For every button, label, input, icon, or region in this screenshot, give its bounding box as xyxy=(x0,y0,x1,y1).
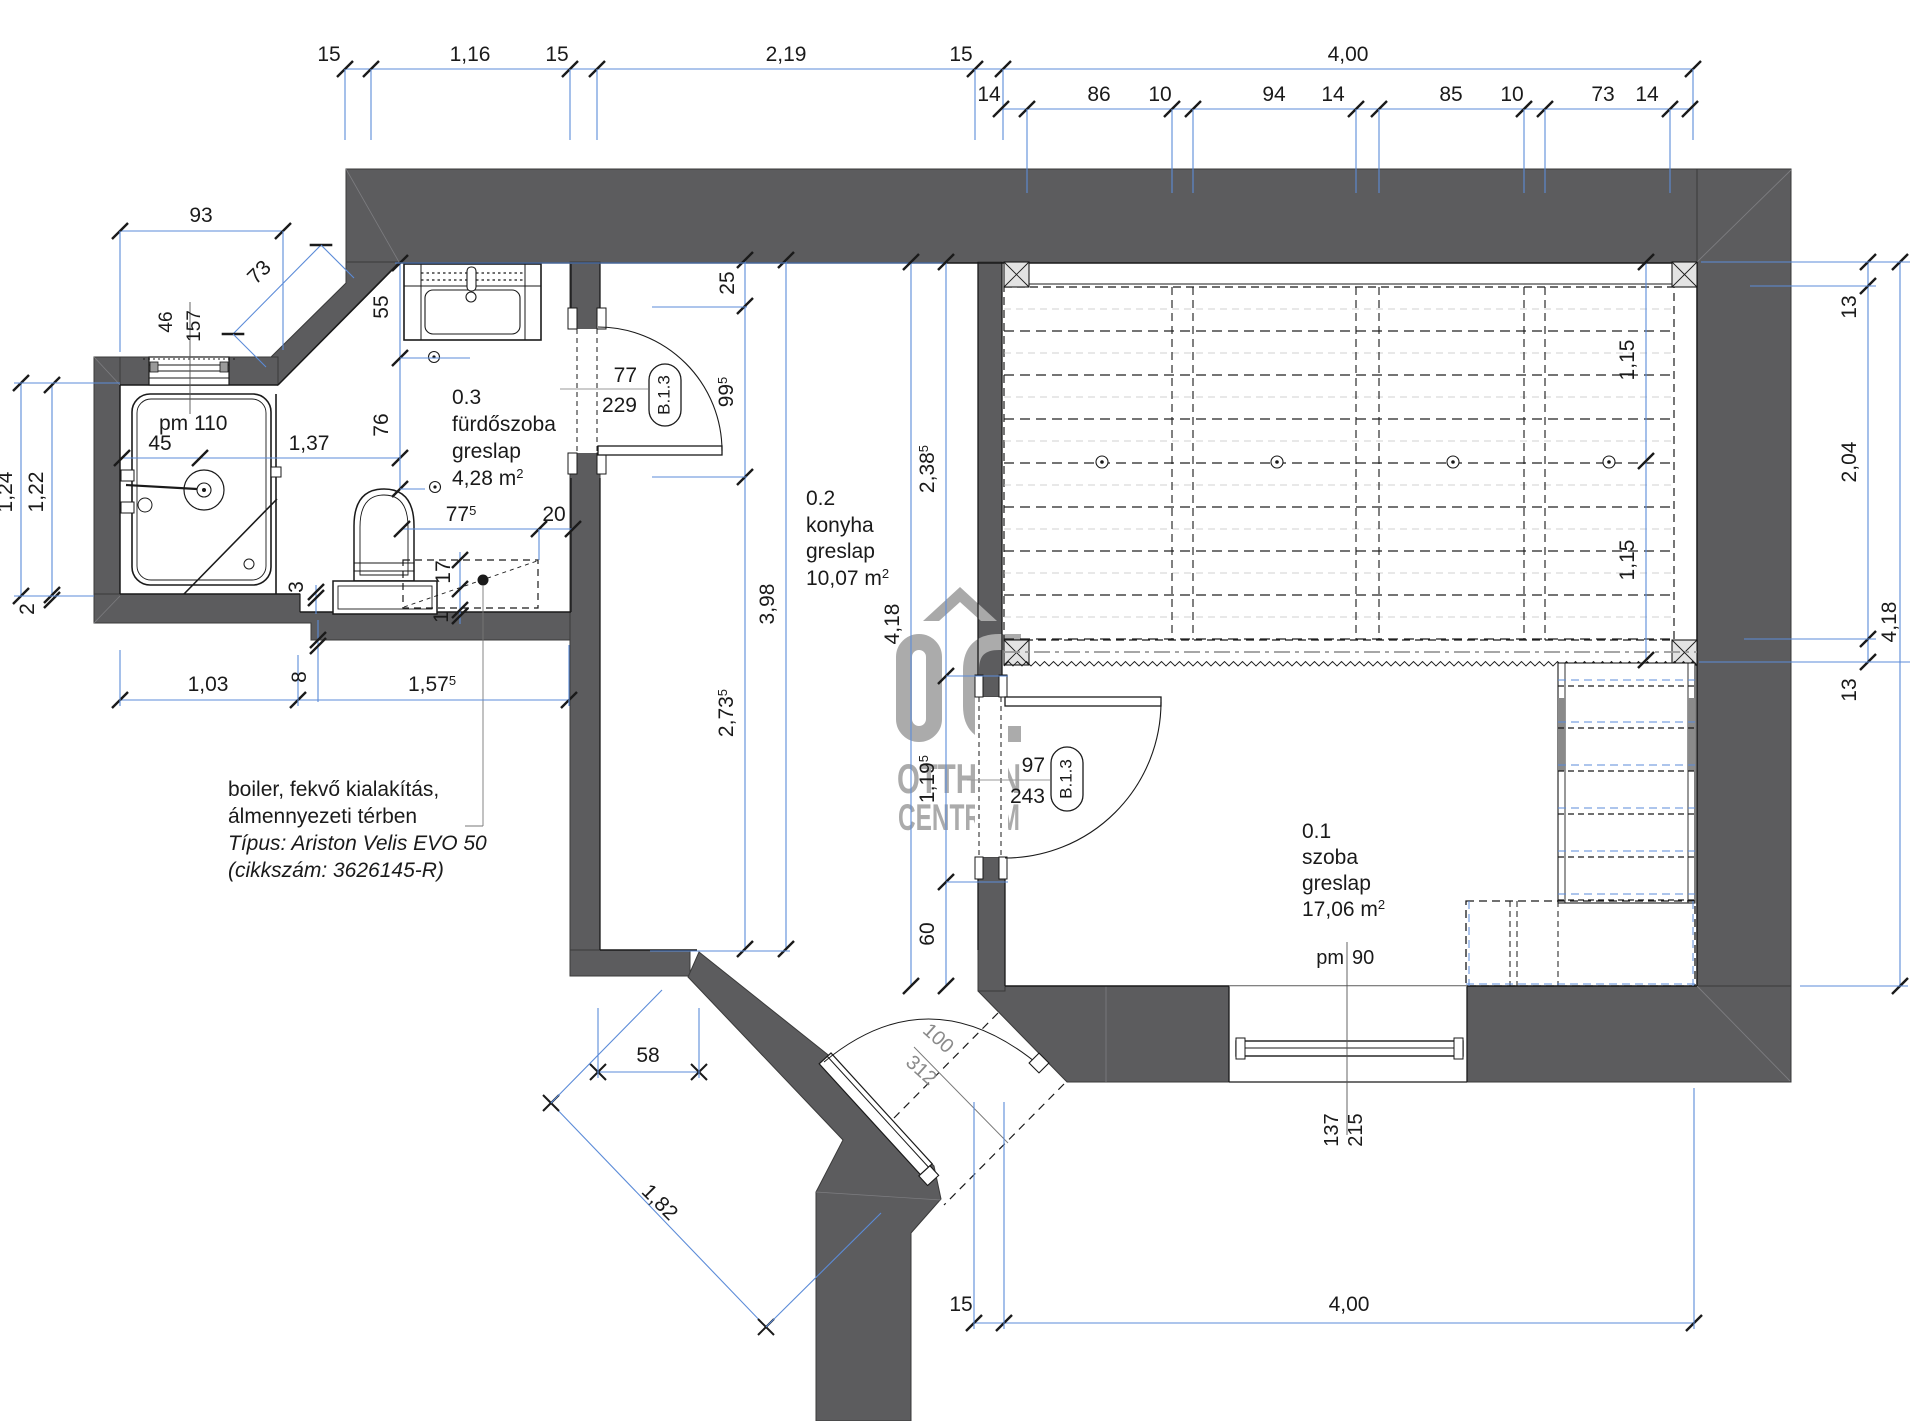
svg-text:229: 229 xyxy=(602,394,637,417)
svg-text:konyha: konyha xyxy=(806,514,874,537)
svg-text:243: 243 xyxy=(1010,785,1045,808)
svg-text:boiler, fekvő kialakítás,: boiler, fekvő kialakítás, xyxy=(228,778,439,801)
svg-text:álmennyezeti térben: álmennyezeti térben xyxy=(228,805,417,828)
svg-text:B.1.3: B.1.3 xyxy=(654,375,673,415)
svg-text:3: 3 xyxy=(285,581,308,593)
svg-text:45: 45 xyxy=(148,432,171,455)
svg-text:77: 77 xyxy=(614,364,637,387)
svg-text:94: 94 xyxy=(1262,83,1286,106)
svg-text:90: 90 xyxy=(1352,947,1374,969)
svg-text:76: 76 xyxy=(370,413,393,436)
svg-text:60: 60 xyxy=(916,922,939,945)
svg-text:20: 20 xyxy=(542,503,565,526)
svg-text:97: 97 xyxy=(1022,754,1045,777)
svg-text:1,15: 1,15 xyxy=(1616,340,1639,381)
svg-text:0.2: 0.2 xyxy=(806,487,835,510)
svg-text:86: 86 xyxy=(1087,83,1110,106)
svg-text:1,24: 1,24 xyxy=(0,471,17,512)
svg-text:4,18: 4,18 xyxy=(881,604,904,645)
svg-text:1,16: 1,16 xyxy=(450,43,491,66)
svg-text:10: 10 xyxy=(1148,83,1171,106)
svg-text:93: 93 xyxy=(189,204,212,227)
svg-text:pm: pm xyxy=(1316,947,1344,969)
svg-text:greslap: greslap xyxy=(1302,872,1371,895)
svg-text:15: 15 xyxy=(949,1293,972,1316)
svg-text:13: 13 xyxy=(1838,678,1861,701)
svg-text:17,06 m2: 17,06 m2 xyxy=(1302,897,1385,921)
svg-text:15: 15 xyxy=(317,43,340,66)
svg-text:0.3: 0.3 xyxy=(452,386,481,409)
svg-text:14: 14 xyxy=(977,83,1001,106)
svg-text:2,19: 2,19 xyxy=(766,43,807,66)
svg-text:73: 73 xyxy=(1591,83,1614,106)
svg-text:fürdőszoba: fürdőszoba xyxy=(452,413,556,436)
svg-text:8: 8 xyxy=(288,671,311,683)
svg-text:4,28 m2: 4,28 m2 xyxy=(452,466,523,490)
svg-text:55: 55 xyxy=(370,295,393,318)
svg-text:85: 85 xyxy=(1439,83,1462,106)
svg-text:46: 46 xyxy=(156,311,177,332)
svg-text:25: 25 xyxy=(716,271,739,294)
svg-text:58: 58 xyxy=(636,1044,659,1067)
svg-text:4,00: 4,00 xyxy=(1328,43,1369,66)
svg-text:17: 17 xyxy=(432,560,455,583)
svg-text:215: 215 xyxy=(1345,1113,1367,1146)
svg-text:14: 14 xyxy=(1635,83,1659,106)
svg-text:1,37: 1,37 xyxy=(289,432,330,455)
svg-text:14: 14 xyxy=(1321,83,1345,106)
svg-text:157: 157 xyxy=(184,310,205,342)
svg-text:1: 1 xyxy=(430,611,453,623)
svg-text:1,15: 1,15 xyxy=(1616,540,1639,581)
svg-text:4,00: 4,00 xyxy=(1329,1293,1370,1316)
svg-text:Típus: Ariston Velis EVO 50: Típus: Ariston Velis EVO 50 xyxy=(228,832,487,855)
svg-text:13: 13 xyxy=(1838,295,1861,318)
svg-text:0.1: 0.1 xyxy=(1302,820,1331,843)
svg-text:15: 15 xyxy=(949,43,972,66)
svg-text:3,98: 3,98 xyxy=(756,584,779,625)
svg-text:1,03: 1,03 xyxy=(188,673,229,696)
svg-text:greslap: greslap xyxy=(806,540,875,563)
svg-text:10: 10 xyxy=(1500,83,1523,106)
svg-text:10,07 m2: 10,07 m2 xyxy=(806,566,889,590)
svg-text:15: 15 xyxy=(545,43,568,66)
svg-text:2: 2 xyxy=(16,603,39,615)
svg-text:137: 137 xyxy=(1321,1113,1343,1146)
svg-text:4,18: 4,18 xyxy=(1878,602,1901,643)
svg-text:B.1.3: B.1.3 xyxy=(1056,759,1075,799)
svg-text:1,22: 1,22 xyxy=(25,472,48,513)
svg-text:(cikkszám: 3626145-R): (cikkszám: 3626145-R) xyxy=(228,859,444,882)
svg-text:2,04: 2,04 xyxy=(1838,441,1861,482)
svg-text:szoba: szoba xyxy=(1302,846,1358,869)
svg-text:greslap: greslap xyxy=(452,440,521,463)
